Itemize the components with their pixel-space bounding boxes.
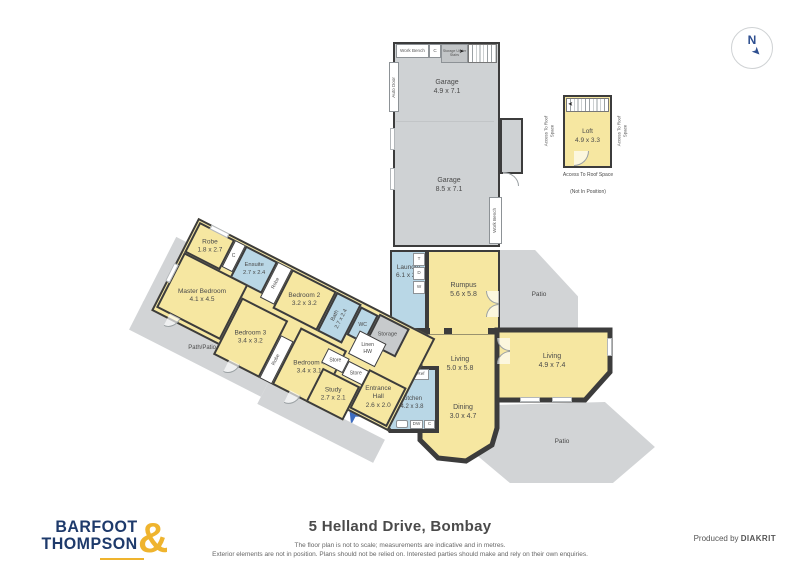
window <box>552 397 572 402</box>
floor-plan-canvas: N ➤ Patio Patio Work Bench C Storage Und… <box>0 0 800 584</box>
sink-fixture <box>396 420 408 428</box>
stairs-arrow-icon: ➤ <box>459 48 464 55</box>
barfoot-thompson-logo: & BARFOOT THOMPSON <box>38 518 144 552</box>
loft-stairs-arrow-icon: ➤ <box>568 100 573 107</box>
living2-label: Living 4.9 x 7.4 <box>520 352 584 371</box>
window <box>520 397 540 402</box>
logo-tagline-rule <box>100 558 144 560</box>
dining-label: Dining 3.0 x 4.7 <box>431 403 495 422</box>
produced-by: Produced by DIAKRIT <box>694 534 776 543</box>
dishwasher-fixture: DW <box>410 420 423 429</box>
logo-line1: BARFOOT <box>38 518 138 535</box>
living-wing-outline <box>0 0 800 584</box>
wall-opening <box>430 326 444 334</box>
cupboard-kitchen: C <box>424 420 435 429</box>
logo-line2: THOMPSON <box>38 535 138 552</box>
wall-opening <box>452 326 488 334</box>
producer-name: DIAKRIT <box>741 534 776 543</box>
window <box>607 338 612 356</box>
living1-label: Living 5.0 x 5.8 <box>428 355 492 374</box>
